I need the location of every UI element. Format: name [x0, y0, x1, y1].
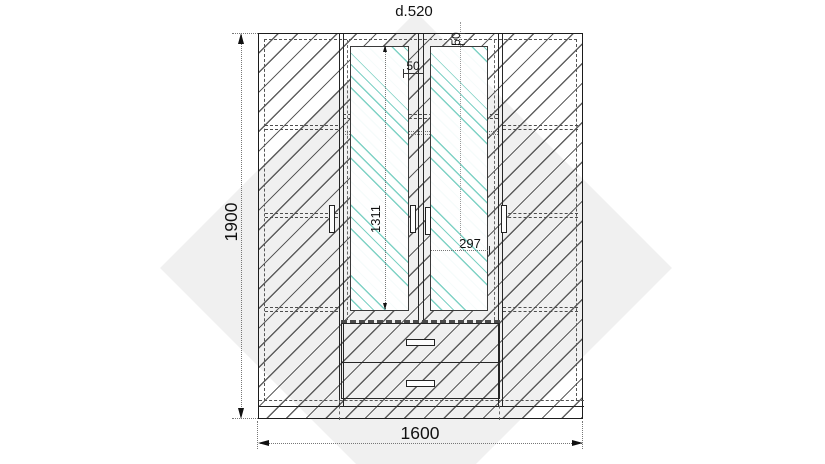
plinth-top-edge	[259, 406, 584, 407]
width-dimension-label: 1600	[380, 423, 460, 444]
shelf-line	[265, 125, 338, 130]
door-edge-dashed-line	[494, 40, 495, 320]
stile-width-dimension-label: 50	[398, 59, 428, 73]
right-mirror-glass	[430, 46, 488, 311]
mirror-width-dimension-label: 297	[448, 236, 492, 251]
drawer-2-handle	[406, 380, 435, 387]
left-mirror-glass	[350, 46, 409, 311]
left-mirror-door-handle	[410, 205, 416, 233]
door-centerline	[460, 22, 461, 250]
stile-width-dimension-line	[403, 73, 424, 74]
shelf-line	[503, 213, 578, 218]
extension-line	[232, 33, 258, 34]
plinth-dashed-line	[339, 400, 340, 420]
dimension-tick	[430, 246, 431, 255]
bottom-panel-dashed-line	[259, 400, 584, 401]
height-dimension-line	[241, 35, 242, 415]
wardrobe-outline	[258, 33, 583, 419]
right-door-handle	[501, 205, 507, 233]
mirror-height-dimension-label: 1311	[368, 185, 384, 253]
right-mirror-door-handle	[425, 207, 431, 235]
shelf-line	[503, 125, 578, 130]
shelf-line	[265, 307, 338, 312]
height-dimension-label: 1900	[221, 187, 241, 257]
mirror-height-dimension-line	[385, 47, 386, 309]
extension-line	[582, 421, 583, 449]
top-rail-dimension-label: 50	[449, 26, 461, 52]
shelf-line	[503, 307, 578, 312]
extension-line	[257, 421, 258, 449]
door-edge-dashed-line	[347, 40, 348, 320]
drawer-1-handle	[406, 339, 435, 346]
arrow-up-icon	[383, 45, 387, 52]
plinth-dashed-line	[499, 400, 500, 420]
left-door-handle	[329, 205, 335, 233]
depth-label: d.520	[394, 3, 434, 20]
extension-line	[232, 418, 258, 419]
technical-drawing-canvas: d.520 1900 1600 1311 297 50 50	[0, 0, 825, 464]
arrow-left-icon	[258, 440, 269, 446]
shelf-line	[265, 213, 338, 218]
arrow-down-icon	[383, 303, 387, 310]
arrow-up-icon	[238, 33, 244, 44]
